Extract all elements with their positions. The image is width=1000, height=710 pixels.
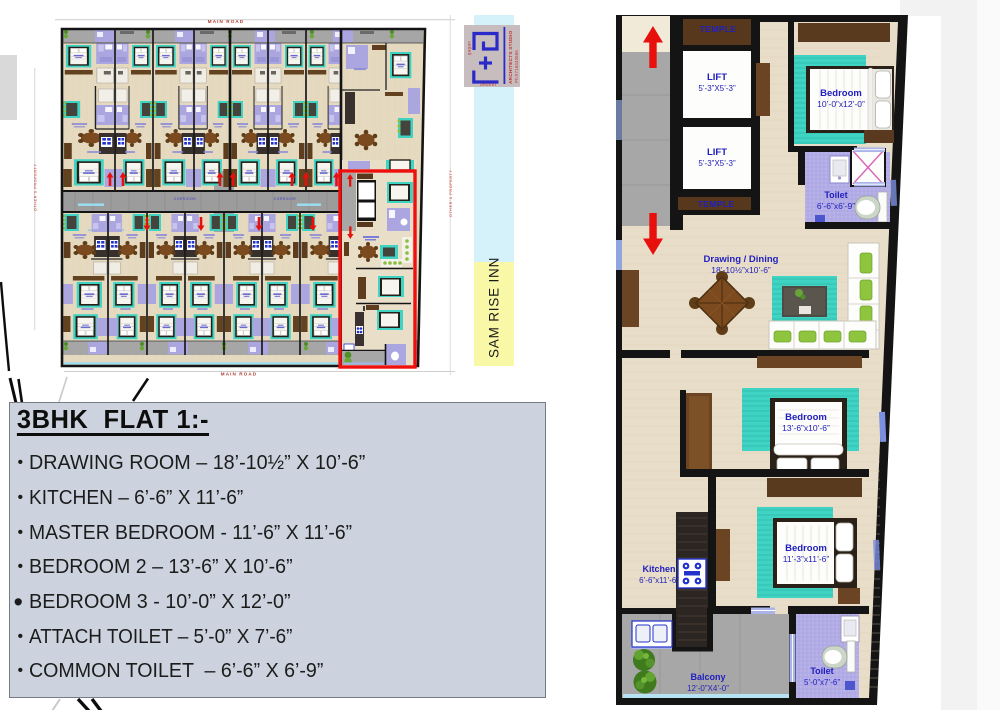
svg-text:10’-0”x12’-0”: 10’-0”x12’-0”	[817, 99, 865, 109]
svg-text:Bedroom: Bedroom	[785, 543, 827, 554]
svg-text:SAM RISE INN: SAM RISE INN	[487, 257, 502, 358]
svg-text:ARCHITECTS STUDIO: ARCHITECTS STUDIO	[508, 30, 513, 84]
svg-text:gagan: gagan	[467, 41, 472, 55]
svg-text:5’-3”X5’-3”: 5’-3”X5’-3”	[698, 84, 736, 93]
svg-text:11’-3”x11’-6”: 11’-3”x11’-6”	[783, 554, 830, 564]
svg-text:raunaq: raunaq	[480, 83, 496, 88]
svg-text:OTHER’S PROPERTY: OTHER’S PROPERTY	[449, 169, 453, 217]
svg-text:CORRIDOR: CORRIDOR	[274, 197, 297, 201]
svg-text:5’-3”X5’-3”: 5’-3”X5’-3”	[698, 159, 736, 168]
svg-text:Ph:9716343586: Ph:9716343586	[514, 50, 519, 83]
svg-text:CORRIDOR: CORRIDOR	[174, 197, 197, 201]
svg-text:13’-6”x10’-6”: 13’-6”x10’-6”	[782, 423, 830, 433]
svg-text:6’-6”x6’-9”: 6’-6”x6’-9”	[817, 201, 855, 211]
svg-text:Toilet: Toilet	[810, 666, 833, 676]
svg-text:OTHER’S PROPERTY: OTHER’S PROPERTY	[34, 163, 38, 211]
svg-text:6’-6”x11’-6”: 6’-6”x11’-6”	[639, 576, 679, 585]
svg-text:TEMPLE: TEMPLE	[698, 199, 735, 209]
svg-text:12’-0”X4’-0”: 12’-0”X4’-0”	[687, 684, 729, 693]
svg-text:Kitchen: Kitchen	[642, 564, 675, 574]
svg-text:Balcony: Balcony	[690, 672, 725, 682]
svg-text:5’-0”x7’-6”: 5’-0”x7’-6”	[804, 678, 840, 687]
svg-text:MAIN ROAD: MAIN ROAD	[221, 372, 257, 377]
svg-text:Drawing / Dining: Drawing / Dining	[704, 254, 779, 265]
svg-text:LIFT: LIFT	[707, 72, 727, 83]
svg-text:MAIN ROAD: MAIN ROAD	[208, 19, 244, 24]
svg-text:TEMPLE: TEMPLE	[700, 24, 737, 34]
svg-text:Toilet: Toilet	[824, 190, 847, 200]
svg-text:LIFT: LIFT	[707, 147, 727, 158]
svg-text:Bedroom: Bedroom	[785, 412, 827, 423]
svg-text:Bedroom: Bedroom	[820, 88, 862, 99]
